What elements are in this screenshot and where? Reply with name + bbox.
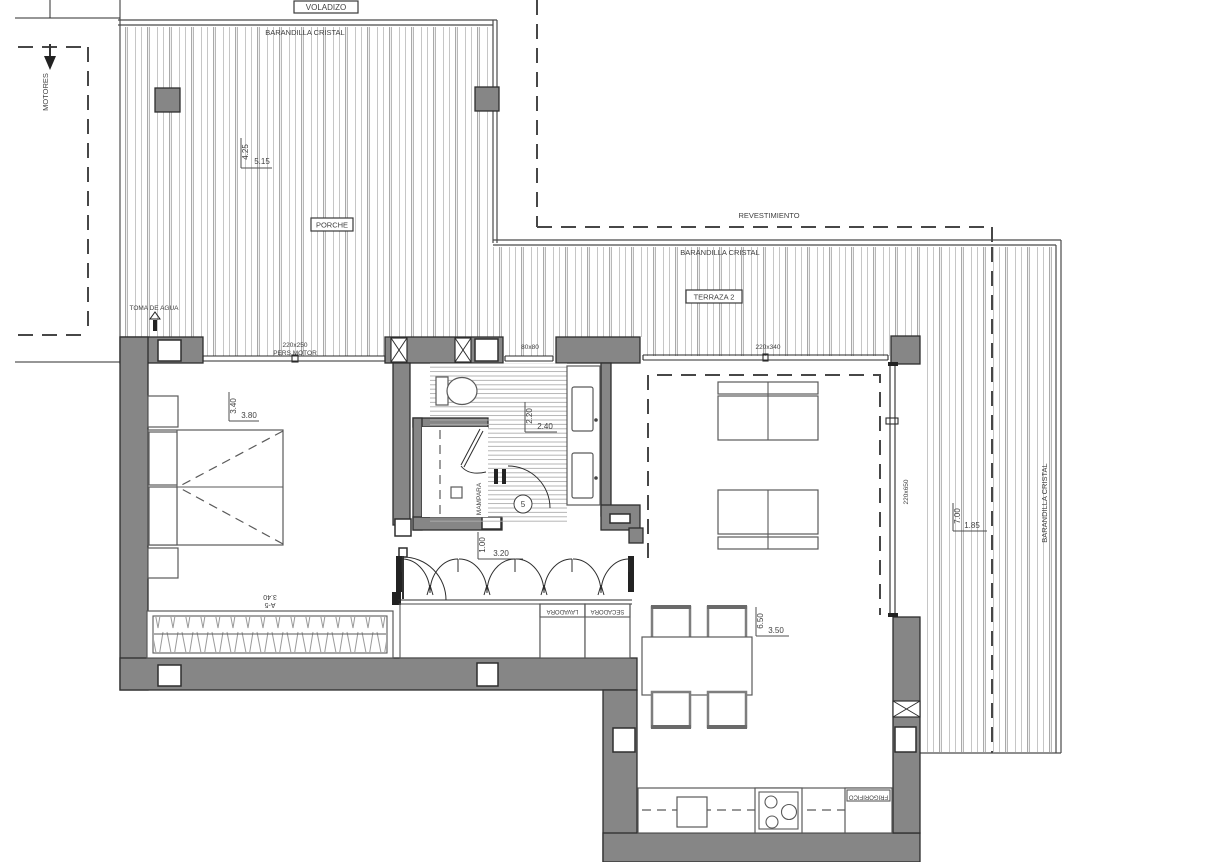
floor-plan: MOTORES REVESTIMIENTO VOLADIZO BARANDILL… bbox=[0, 0, 1212, 862]
floor-plan-drawing: MOTORES REVESTIMIENTO VOLADIZO BARANDILL… bbox=[0, 0, 1212, 862]
porch-post bbox=[155, 88, 180, 112]
laundry-closet: LAVADORA SECADORA bbox=[396, 556, 634, 658]
porche-label: PORCHE bbox=[316, 221, 348, 230]
window-bedroom-type: PERS.MOTOR bbox=[273, 350, 317, 357]
living-room: 6.50 3.50 bbox=[642, 375, 880, 727]
dim-bedroom: 3.40 3.80 bbox=[229, 392, 259, 421]
lavadora-label: LAVADORA bbox=[547, 608, 579, 614]
porche-tag: PORCHE bbox=[311, 218, 353, 231]
dim-hall-v: 1.00 bbox=[478, 537, 487, 553]
dim-terrace-v: 7.00 bbox=[953, 508, 962, 524]
dim-hall-h: 3.20 bbox=[493, 549, 509, 558]
window-bedroom-size: 220x250 bbox=[283, 342, 308, 349]
pillow bbox=[149, 432, 177, 485]
window-east: 220x650 bbox=[886, 362, 910, 617]
window-bath-size: 80x80 bbox=[521, 344, 539, 351]
dim-bedroom-h: 3.80 bbox=[241, 411, 257, 420]
kitchen: FRIGORIFICO bbox=[638, 788, 892, 833]
dim-bath-v: 2.20 bbox=[525, 408, 534, 424]
toilet bbox=[436, 377, 477, 405]
fridge: FRIGORIFICO bbox=[845, 788, 892, 833]
wardrobe-size-label: 3.40 bbox=[263, 593, 277, 600]
sofa bbox=[718, 382, 818, 440]
door-number-label: 5 bbox=[521, 500, 526, 509]
voladizo-tag: VOLADIZO bbox=[294, 1, 358, 13]
dim-bath-h: 2.40 bbox=[537, 422, 553, 431]
dim-living-v: 6.50 bbox=[756, 613, 765, 629]
dim-living-h: 3.50 bbox=[768, 626, 784, 635]
sink-basin bbox=[572, 387, 593, 431]
motores-label: MOTORES bbox=[41, 73, 50, 111]
barandilla-right-label: BARANDILLA CRISTAL bbox=[1040, 463, 1049, 542]
mampara-label: MAMPARA bbox=[476, 482, 483, 515]
window-east-size: 220x650 bbox=[903, 479, 910, 504]
dining-table bbox=[642, 637, 752, 695]
dining-chair bbox=[707, 692, 747, 727]
kitchen-sink bbox=[677, 797, 707, 827]
motores-zone: MOTORES bbox=[18, 44, 88, 335]
revestimiento-label: REVESTIMIENTO bbox=[738, 211, 799, 220]
dim-bedroom-v: 3.40 bbox=[229, 398, 238, 414]
bathroom: MAMPARA 5 2.20 2.40 bbox=[422, 363, 600, 523]
voladizo-label: VOLADIZO bbox=[306, 3, 346, 12]
wardrobe-ref-label: A-5 bbox=[264, 601, 275, 608]
dim-living: 6.50 3.50 bbox=[756, 607, 789, 636]
wardrobe: 3.40 A-5 bbox=[147, 593, 393, 658]
vanity bbox=[567, 366, 600, 505]
shower: MAMPARA bbox=[422, 427, 488, 517]
window-living-size: 220x340 bbox=[756, 344, 781, 351]
toma-de-agua-label: TOMA DE AGUA bbox=[129, 305, 179, 312]
porch-post bbox=[475, 87, 499, 111]
cooktop bbox=[755, 788, 802, 833]
motores-arrow-icon bbox=[44, 56, 56, 70]
dryer: SECADORA bbox=[585, 604, 630, 658]
barandilla-terraza-label: BARANDILLA CRISTAL bbox=[680, 248, 759, 257]
barandilla-top-label: BARANDILLA CRISTAL bbox=[265, 28, 344, 37]
terraza2-tag: TERRAZA 2 bbox=[686, 290, 742, 303]
door-number-tag: 5 bbox=[514, 495, 532, 513]
dim-porch-h: 5.15 bbox=[254, 157, 270, 166]
bifold-doors bbox=[402, 559, 629, 595]
frigorifico-label: FRIGORIFICO bbox=[849, 794, 889, 800]
washer: LAVADORA bbox=[540, 604, 585, 658]
nightstand bbox=[148, 548, 178, 578]
secadora-label: SECADORA bbox=[591, 608, 625, 614]
dining-set bbox=[642, 607, 752, 727]
dim-hall: 1.00 3.20 bbox=[478, 532, 523, 559]
dining-chair bbox=[651, 692, 691, 727]
sofa bbox=[718, 490, 818, 549]
terraza2-label: TERRAZA 2 bbox=[694, 293, 735, 302]
nightstand bbox=[148, 396, 178, 427]
pillow bbox=[149, 487, 177, 545]
dim-porch-v: 4.25 bbox=[241, 144, 250, 160]
sink-basin bbox=[572, 453, 593, 498]
shower-drain bbox=[451, 487, 462, 498]
dim-terrace-h: 1.85 bbox=[964, 521, 980, 530]
